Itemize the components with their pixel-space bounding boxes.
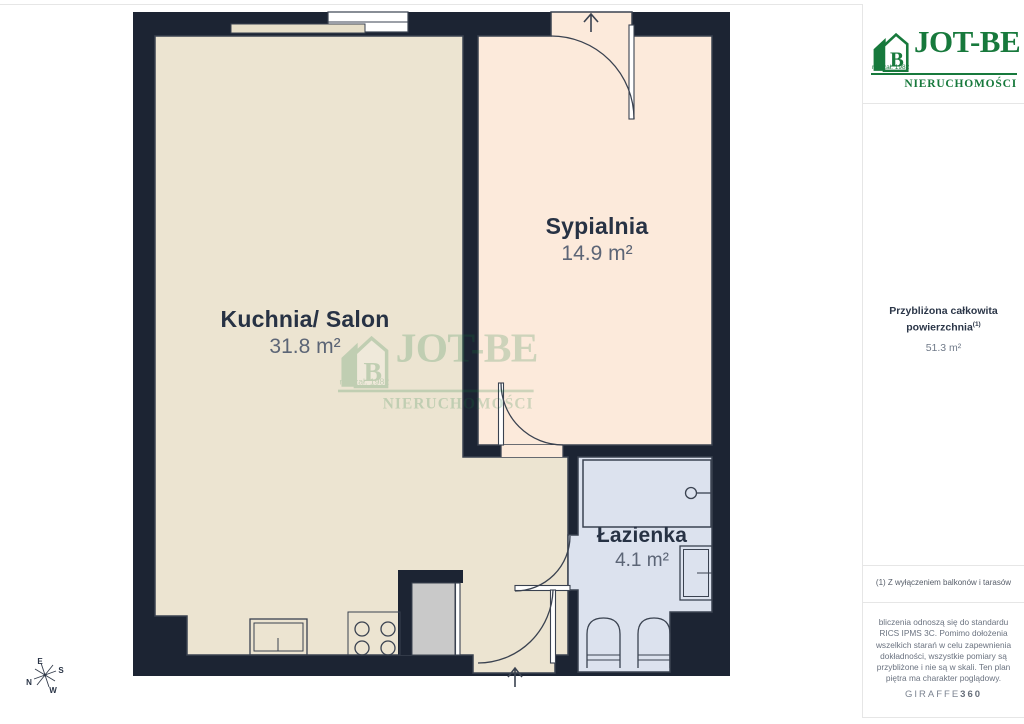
info-sidebar: B JOT-BE rok zał. 1982 NIERUCHOMOŚCI Prz… [862, 4, 1024, 718]
total-area-value: 51.3 m² [869, 342, 1018, 354]
compass-s: S [56, 666, 66, 675]
watermark-logo: B JOT-BE rok zał. 1982 NIERUCHOMOŚCI [338, 332, 536, 418]
footnote-text: (1) Z wyłączeniem balkonów i tarasów [867, 578, 1020, 587]
logo-rule [871, 73, 1017, 75]
logo-title: JOT-BE [396, 324, 538, 372]
total-area-label-text: Przybliżona całkowita powierzchnia [889, 305, 998, 334]
logo-title: JOT-BE [914, 24, 1020, 60]
sidebar-divider [863, 103, 1024, 104]
giraffe360-brand: GIRAFFE360 [863, 689, 1024, 700]
compass-w: W [48, 686, 58, 695]
compass-e: E [35, 657, 45, 666]
logo-subtitle: NIERUCHOMOŚCI [904, 78, 1017, 90]
wardrobe-door [456, 583, 461, 655]
sidebar-divider [863, 717, 1024, 718]
bedroom-door-threshold [501, 445, 563, 457]
brand-name: GIRAFFE [905, 689, 960, 700]
compass-n: N [24, 678, 34, 687]
logo-rule [338, 390, 534, 393]
logo-tagline: rok zał. 1982 [872, 64, 909, 71]
main-entrance-door-leaf [551, 590, 556, 663]
brand-suffix: 360 [960, 689, 982, 700]
disclaimer-text: bliczenia odnoszą się do standardu RICS … [874, 617, 1013, 685]
floorplan-viewer: Kuchnia/ Salon 31.8 m² Sypialnia 14.9 m²… [0, 0, 1024, 724]
wardrobe [412, 583, 455, 655]
bathroom-door-leaf [515, 586, 570, 591]
logo-subtitle: NIERUCHOMOŚCI [383, 396, 534, 412]
sidebar-divider [863, 602, 1024, 603]
compass-icon [18, 650, 74, 702]
sidebar-divider [863, 565, 1024, 566]
footnote-marker: (1) [973, 321, 981, 328]
kitchen-counter [231, 24, 365, 33]
closet-wall-top [398, 570, 463, 583]
company-logo: B JOT-BE rok zał. 1982 NIERUCHOMOŚCI [871, 30, 1019, 94]
total-area-label: Przybliżona całkowita powierzchnia(1) [869, 304, 1018, 335]
total-area-block: Przybliżona całkowita powierzchnia(1) 51… [869, 304, 1018, 354]
logo-tagline: rok zał. 1982 [339, 378, 389, 387]
